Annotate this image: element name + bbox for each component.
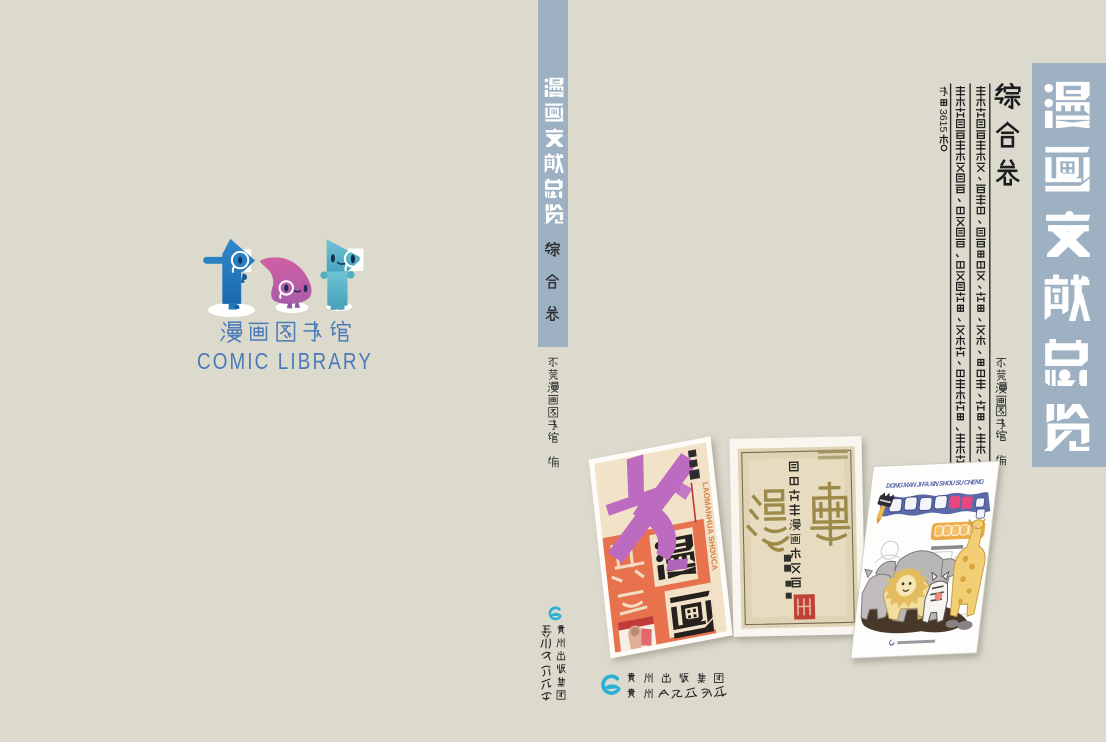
svg-text:3615: 3615 bbox=[937, 109, 949, 133]
svg-text:COMIC LIBRARY: COMIC LIBRARY bbox=[197, 349, 373, 374]
